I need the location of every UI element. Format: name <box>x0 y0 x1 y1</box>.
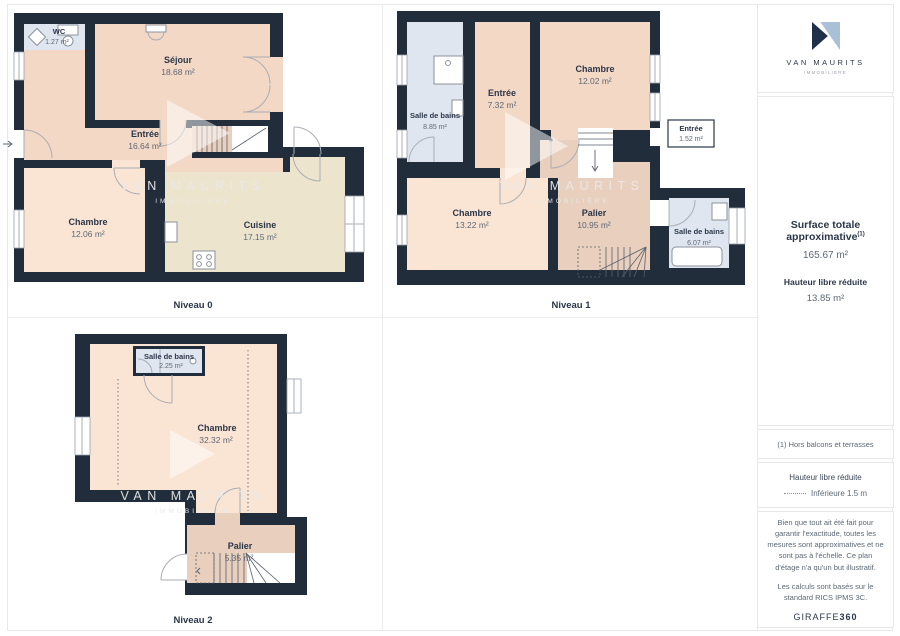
surface-panel: Surface totale approximative(1) 165.67 m… <box>757 96 894 426</box>
room-label: Salle de bains <box>674 227 724 236</box>
brand-name: VAN MAURITS <box>786 58 864 67</box>
watermark-text: VAN MAURITS <box>121 179 266 193</box>
room-area: 32.32 m² <box>199 435 233 445</box>
room-label: Entrée <box>679 124 702 133</box>
room-label: Chambre <box>452 208 491 218</box>
disclaimer-text: Bien que tout ait été fait pour garantir… <box>767 517 884 573</box>
room-label: WC <box>53 27 66 36</box>
room-label: Chambre <box>575 64 614 74</box>
room-area: 17.15 m² <box>243 232 277 242</box>
reduced-height-label: Hauteur libre réduite <box>784 277 867 287</box>
room-area: 6.07 m² <box>687 240 711 247</box>
sidebar: VAN MAURITS IMMOBILIÈRE Surface totale a… <box>757 4 894 631</box>
room-label: Cuisine <box>244 220 277 230</box>
niche-icon <box>146 25 166 32</box>
bathtub-icon <box>672 247 722 266</box>
brand-tagline: IMMOBILIÈRE <box>804 70 847 75</box>
footnote-marker: (1) <box>857 231 864 237</box>
legend-row: Inférieure 1.5 m <box>784 489 867 498</box>
plan-level-label: Niveau 0 <box>173 300 212 311</box>
floorplan-sheet: VAN MAURITS IMMOBILIÈRE WC 1.27 m² Séjou… <box>0 0 900 636</box>
room-salle-de-bains <box>407 22 463 162</box>
footnote-panel: (1) Hors balcons et terrasses <box>757 429 894 459</box>
room-area: 7.32 m² <box>488 100 517 110</box>
room-area: 2.25 m² <box>159 363 183 370</box>
giraffe360-logo: GIRAFFE360 <box>793 612 857 622</box>
room-area: 1.52 m² <box>679 136 703 143</box>
entree-callout: Entrée 1.52 m² <box>668 120 714 147</box>
room-label: Séjour <box>164 55 193 65</box>
room-area: 12.06 m² <box>71 229 105 239</box>
floor-plan-niveau-2: VAN MAURITS IMMOBILIÈRE Salle de bains 2… <box>0 317 382 636</box>
sink-icon <box>712 203 727 220</box>
entry-arrow-icon <box>3 141 12 147</box>
legend-panel: Hauteur libre réduite Inférieure 1.5 m <box>757 462 894 508</box>
reduced-height-value: 13.85 m² <box>807 293 845 304</box>
brand-logo-icon <box>812 22 840 50</box>
surface-total-title: Surface totale approximative(1) <box>758 219 893 243</box>
watermark-subtext: IMMOBILIÈRE <box>155 196 231 205</box>
room-label: Entrée <box>131 129 159 139</box>
room-area: 5.35 m² <box>225 553 254 563</box>
room-entree <box>24 50 85 160</box>
standard-text: Les calculs sont basés sur le standard R… <box>767 581 884 604</box>
room-area: 18.68 m² <box>161 67 195 77</box>
room-area: 8.85 m² <box>423 124 447 131</box>
footnote-text: (1) Hors balcons et terrasses <box>777 440 873 449</box>
dotted-line-icon <box>784 493 806 494</box>
room-area: 12.02 m² <box>578 76 612 86</box>
plan-level-label: Niveau 2 <box>173 615 212 626</box>
stove-icon <box>193 251 215 269</box>
room-area: 16.64 m² <box>128 141 162 151</box>
giraffe-text: GIRAFFE <box>793 612 839 622</box>
surface-total-value: 165.67 m² <box>803 250 848 261</box>
room-label: Palier <box>228 541 253 551</box>
surface-title-text: Surface totale approximative <box>786 219 860 243</box>
plan-level-label: Niveau 1 <box>551 300 591 311</box>
floor-plan-niveau-0: VAN MAURITS IMMOBILIÈRE WC 1.27 m² Séjou… <box>0 0 382 317</box>
room-area: 13.22 m² <box>455 220 489 230</box>
legend-item-label: Inférieure 1.5 m <box>811 489 867 498</box>
room-area: 1.27 m² <box>45 39 69 46</box>
room-label: Entrée <box>488 88 516 98</box>
legend-title: Hauteur libre réduite <box>789 473 861 482</box>
room-label: Palier <box>582 208 607 218</box>
room-label: Salle de bains <box>144 352 194 361</box>
brand-panel: VAN MAURITS IMMOBILIÈRE <box>757 4 894 93</box>
watermark-subtext: IMMOBILIÈRE <box>534 196 610 205</box>
room-cuisine <box>165 157 345 272</box>
room-label: Salle de bains <box>410 111 460 120</box>
room-area: 10.95 m² <box>577 220 611 230</box>
watermark-text: VAN MAURITS <box>500 179 645 193</box>
kitchen-sink-icon <box>165 222 177 242</box>
disclaimer-panel: Bien que tout ait été fait pour garantir… <box>757 511 894 628</box>
giraffe-360: 360 <box>839 612 857 622</box>
floor-plan-niveau-1: Entrée 1.52 m² VAN MAURITS IMMOBILIÈRE S… <box>382 0 757 317</box>
watermark-subtext: IMMOBILIÈRE <box>155 506 231 515</box>
watermark-text: VAN MAURITS <box>121 489 266 503</box>
room-label: Chambre <box>197 423 236 433</box>
room-label: Chambre <box>68 217 107 227</box>
